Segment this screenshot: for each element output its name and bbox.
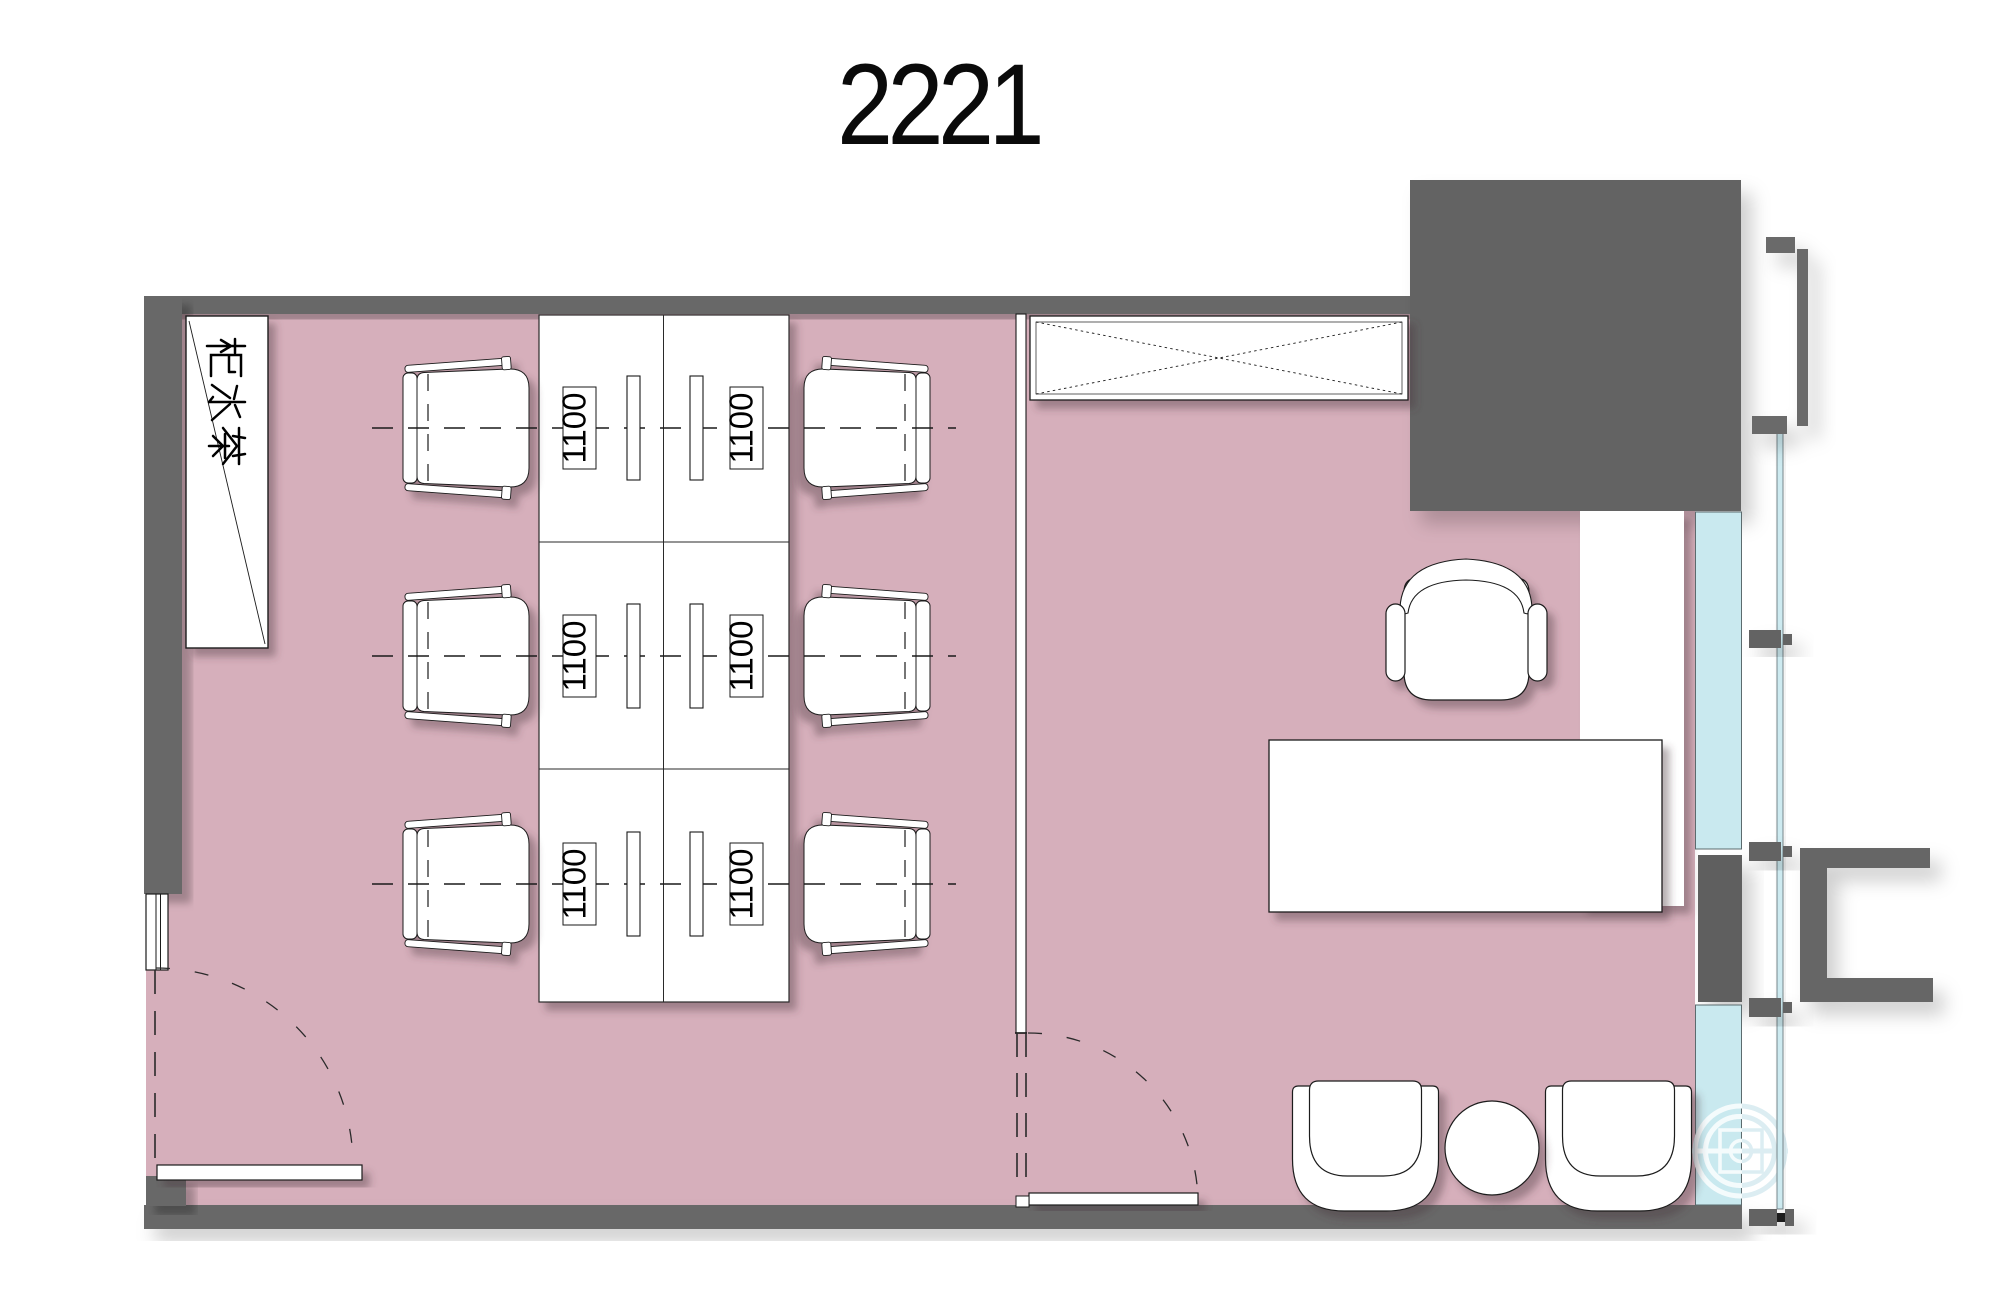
svg-text:1100: 1100 (723, 621, 760, 692)
svg-text:1100: 1100 (556, 393, 593, 464)
svg-text:1100: 1100 (556, 849, 593, 920)
svg-text:1100: 1100 (723, 849, 760, 920)
svg-text:2221: 2221 (837, 40, 1040, 169)
svg-text:1100: 1100 (723, 393, 760, 464)
svg-text:1100: 1100 (556, 621, 593, 692)
